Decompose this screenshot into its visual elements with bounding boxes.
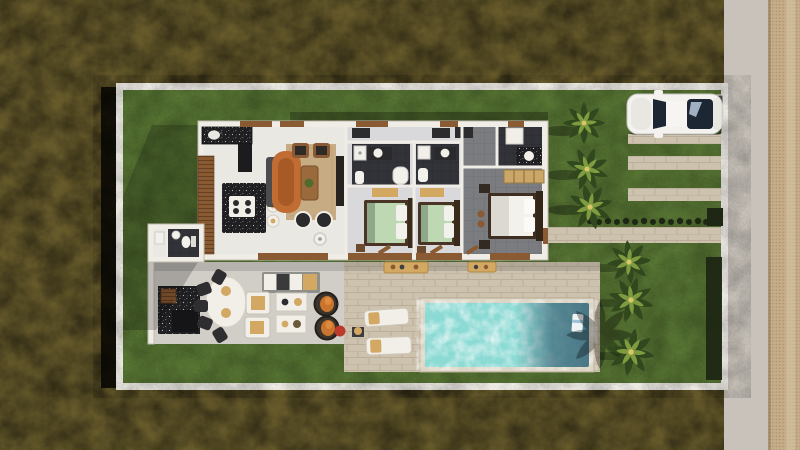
bed-bench — [372, 188, 398, 197]
swivel-chair — [316, 212, 332, 228]
coffee-table — [276, 293, 307, 311]
bed — [418, 200, 460, 246]
sun-lounger — [364, 308, 409, 327]
toilet — [182, 236, 191, 248]
pool-deep-end — [425, 303, 589, 367]
wood-stool — [477, 210, 484, 217]
street: Street — [724, 0, 768, 450]
corner-planter — [707, 208, 723, 226]
wash-basin — [172, 231, 180, 239]
wood-stool — [477, 220, 484, 227]
egg-chair — [316, 317, 339, 340]
wall-cast-shadow — [101, 87, 116, 388]
bed-bench — [420, 188, 444, 197]
palm-tree — [563, 102, 605, 144]
scene-canvas: Top-down 3D architectural rendering: sin… — [0, 0, 800, 450]
sofa-seat — [278, 158, 294, 206]
paver-strip — [628, 134, 721, 144]
paver-strip — [628, 188, 721, 201]
cooktop — [229, 196, 255, 217]
place-setting — [221, 286, 231, 296]
outdoor-sofa — [262, 272, 320, 293]
bed — [364, 198, 414, 248]
outdoor-armchair — [246, 292, 270, 314]
bed — [488, 191, 543, 241]
nightstand — [479, 240, 490, 249]
place-setting — [221, 308, 231, 318]
egg-chair: Rattan egg chairs — [315, 293, 338, 316]
car: White car parked on driveway — [627, 90, 722, 138]
entry-walkway: Entry walkway to street — [548, 227, 721, 243]
side-mirror — [654, 133, 663, 138]
red-decor-ball — [335, 326, 346, 337]
shower-tray — [418, 146, 430, 159]
car-trunk — [713, 98, 721, 130]
toilet — [418, 168, 428, 182]
shower-tray — [506, 128, 523, 144]
wardrobe — [455, 127, 473, 138]
car-hood — [631, 98, 651, 130]
nightstand — [479, 184, 490, 193]
daybed-cushion — [468, 262, 496, 272]
wash-basin — [524, 151, 534, 161]
wardrobe — [432, 128, 450, 138]
side-hedge-strip — [706, 257, 722, 380]
wardrobe — [352, 128, 370, 138]
headboard — [536, 191, 543, 241]
coffee-table — [276, 315, 306, 333]
faucet — [220, 132, 223, 135]
pool-group: Swimming pool — [420, 298, 634, 372]
table-plant — [305, 179, 314, 188]
bathtub — [393, 167, 408, 184]
tv-console: TV console — [336, 156, 344, 206]
outdoor-armchair — [245, 317, 270, 338]
wash-basin — [373, 148, 382, 157]
nightstand — [417, 246, 426, 253]
sidewalk-edge-shadow — [768, 0, 771, 450]
sun-hat — [354, 327, 362, 335]
sidewalk-light-band — [786, 0, 795, 450]
car-roof — [666, 101, 687, 127]
floor-plan-render: Top-down 3D architectural rendering: sin… — [0, 0, 800, 450]
dining-table — [206, 277, 246, 327]
tall-cabinet — [238, 144, 252, 172]
house-shadow-on-deck — [148, 262, 600, 271]
headboard — [454, 200, 460, 246]
windshield — [653, 99, 666, 129]
swivel-chair — [295, 212, 311, 228]
powder-room: Powder room annex — [148, 224, 204, 262]
laundry-unit — [155, 232, 164, 244]
sun-lounger — [366, 336, 412, 355]
sidewalk: Dotted paver sidewalk — [768, 0, 800, 450]
daybed-cushion — [384, 262, 428, 273]
kitchen-sink — [208, 130, 220, 139]
toilet — [355, 171, 364, 184]
wash-basin — [441, 149, 450, 158]
side-mirror — [654, 90, 663, 95]
bbq-grill — [172, 310, 198, 332]
paver-strip — [628, 156, 721, 170]
nightstand — [356, 244, 365, 252]
armchair — [313, 143, 330, 158]
east-door — [543, 228, 548, 244]
armchair — [292, 143, 309, 158]
